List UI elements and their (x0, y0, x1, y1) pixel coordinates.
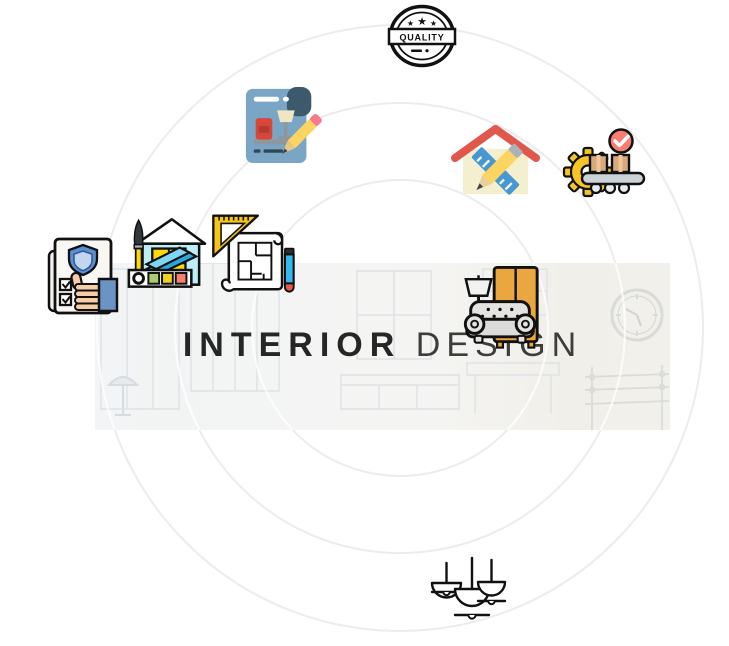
living-room-furniture-icon (458, 264, 544, 352)
quality-checklist-icon (47, 237, 121, 317)
check-badge-icon (610, 130, 633, 153)
home-decor-icon (123, 213, 205, 290)
color-palette (129, 270, 191, 287)
title-primary: INTERIOR (183, 326, 401, 364)
blueprint-icon (206, 206, 300, 296)
interior-design-graphic: INTERIOR DESIGN ★ ★ ★ QUALITY (0, 0, 729, 646)
furniture-sketch-document-icon (243, 85, 323, 165)
star-icon: ★ (417, 16, 427, 28)
conveyor (582, 173, 644, 193)
quality-label: QUALITY (399, 33, 444, 43)
pendant-left (432, 563, 461, 606)
home-design-tools-icon (452, 122, 539, 198)
quality-stamp-icon: ★ ★ ★ QUALITY (388, 4, 456, 68)
paintbrush-icon (134, 220, 143, 274)
roof (137, 219, 205, 243)
pendant-lamps-icon (426, 556, 506, 626)
star-icon: ★ (430, 19, 437, 28)
armchair (465, 302, 534, 343)
star-icon: ★ (407, 19, 414, 28)
pencil (285, 249, 294, 292)
shield-icon (69, 245, 97, 275)
armchair-sketch (256, 118, 273, 139)
page-title: INTERIOR DESIGN (95, 326, 670, 365)
production-line-icon (562, 128, 646, 202)
